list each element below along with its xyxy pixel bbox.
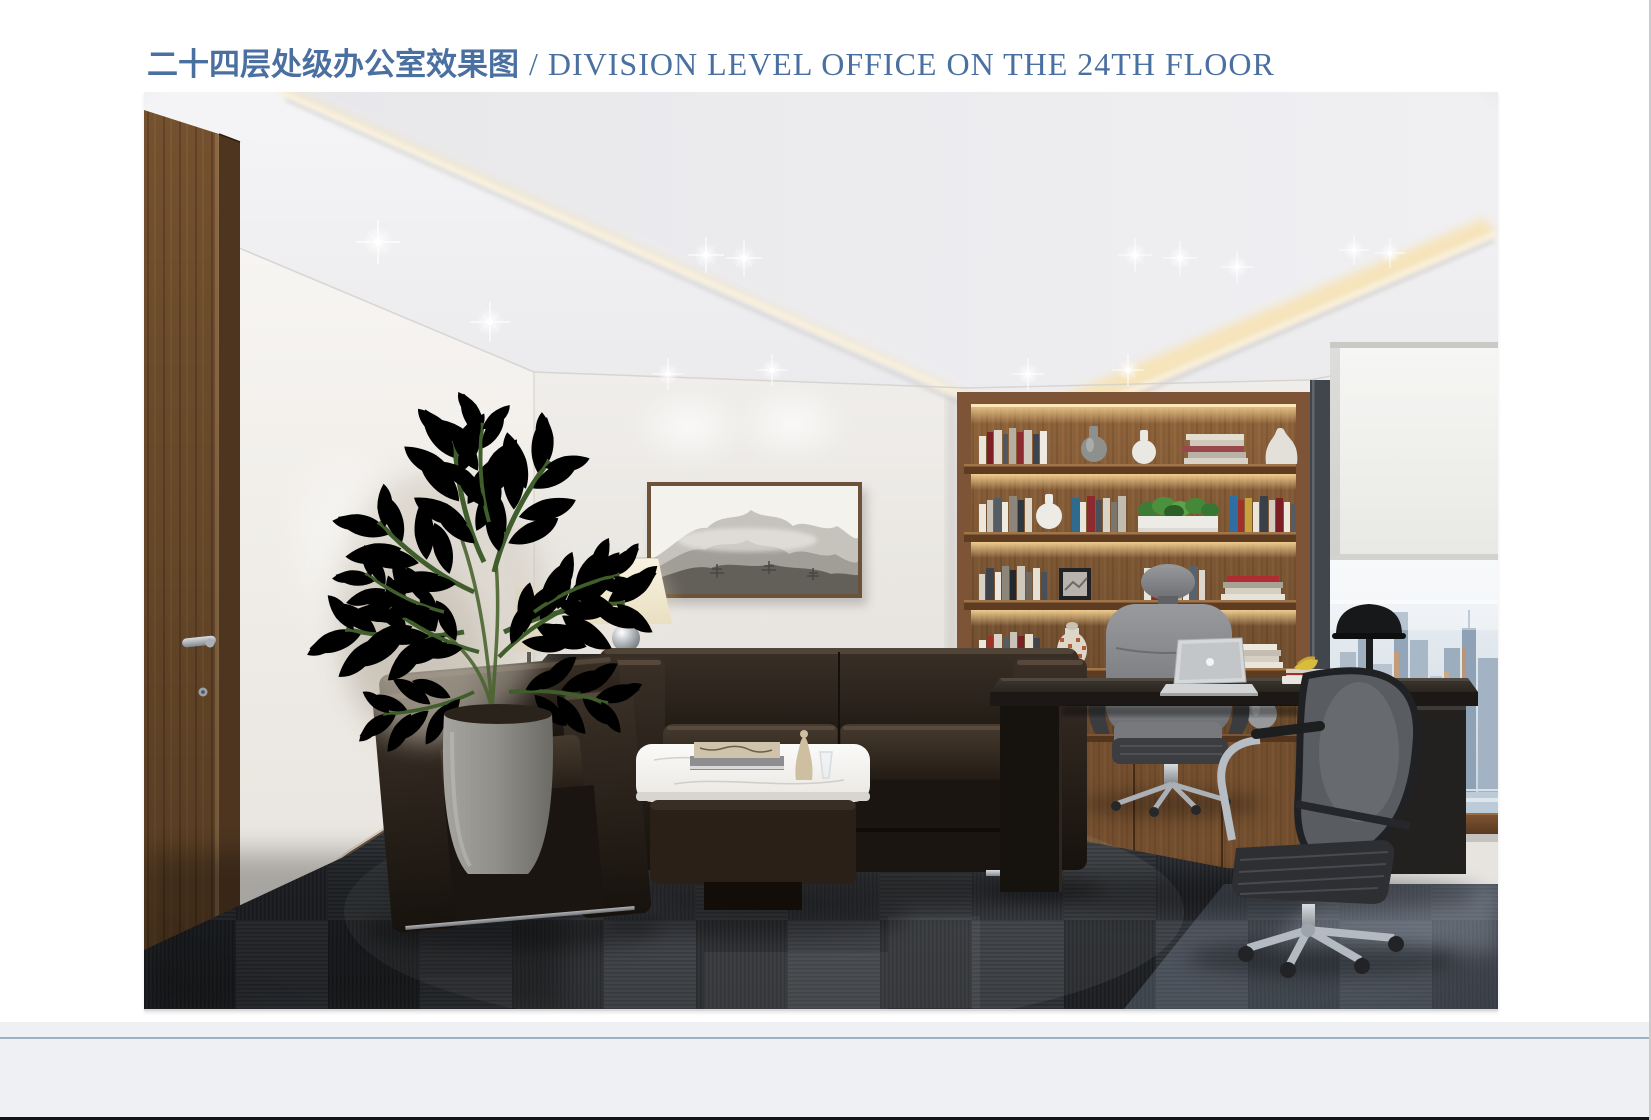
footer-divider-line <box>0 1037 1651 1039</box>
page-header: 二十四层处级办公室效果图/ DIVISION LEVEL OFFICE ON T… <box>147 48 1275 80</box>
page-title: 二十四层处级办公室效果图/ DIVISION LEVEL OFFICE ON T… <box>147 48 1275 80</box>
office-rendering <box>144 92 1498 1011</box>
title-english: / DIVISION LEVEL OFFICE ON THE 24TH FLOO… <box>529 46 1275 82</box>
title-chinese: 二十四层处级办公室效果图 <box>147 47 519 82</box>
footer-band <box>0 1022 1651 1117</box>
vignette <box>144 92 1498 1009</box>
office-rendering-canvas <box>144 92 1498 1009</box>
